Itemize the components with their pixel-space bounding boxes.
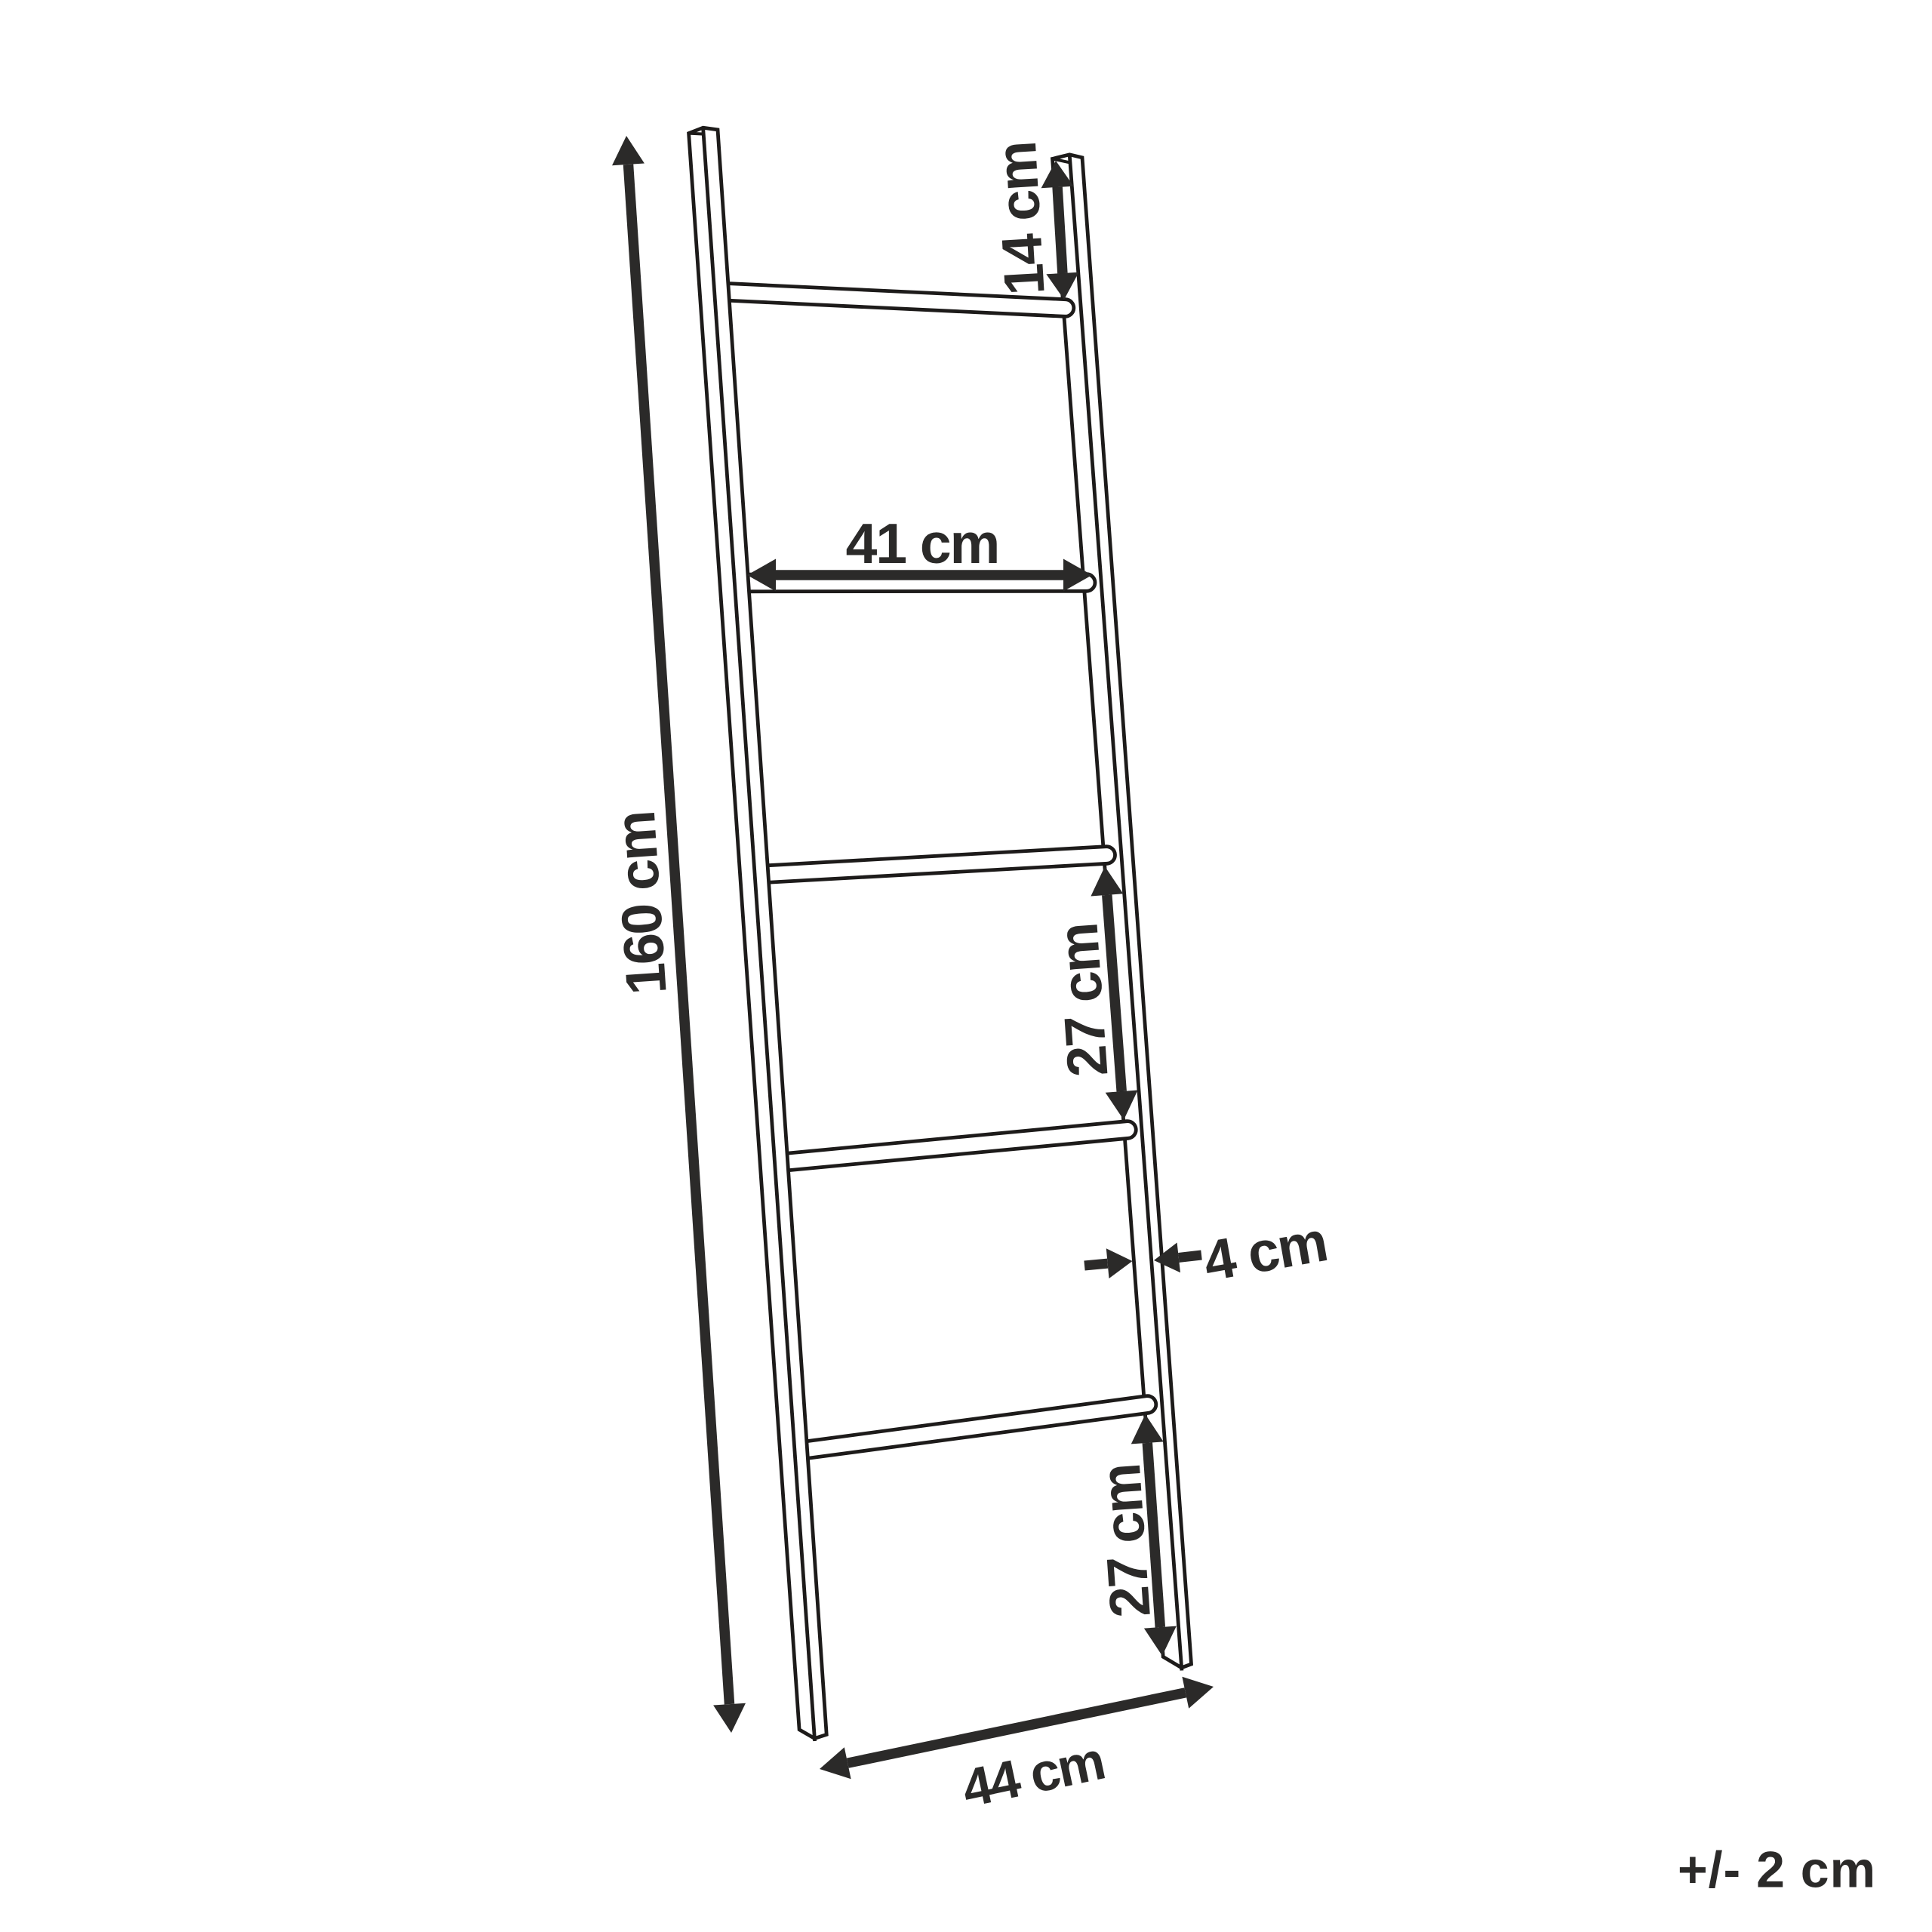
- svg-text:4 cm: 4 cm: [1199, 1209, 1331, 1293]
- svg-text:14 cm: 14 cm: [984, 140, 1057, 297]
- svg-text:160 cm: 160 cm: [603, 810, 678, 996]
- svg-text:44 cm: 44 cm: [957, 1731, 1109, 1820]
- svg-text:27 cm: 27 cm: [1046, 921, 1120, 1078]
- svg-text:27 cm: 27 cm: [1088, 1463, 1162, 1620]
- svg-text:41 cm: 41 cm: [846, 512, 999, 575]
- svg-text:+/- 2 cm: +/- 2 cm: [1678, 1841, 1876, 1899]
